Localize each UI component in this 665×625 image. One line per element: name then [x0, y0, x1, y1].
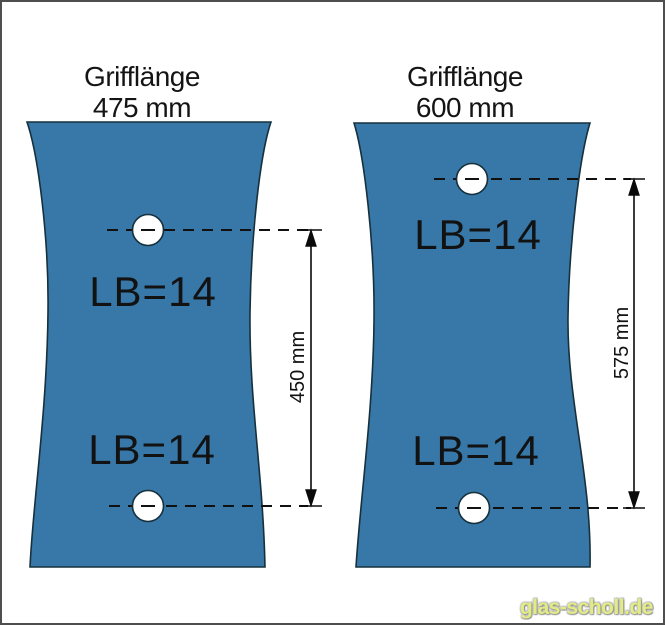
arrowhead-up-icon: [629, 180, 639, 195]
dimension-value-right: 575 mm: [612, 307, 632, 379]
panel-left-title: Grifflänge 475 mm: [84, 61, 200, 123]
dimension-value-left: 450 mm: [288, 331, 308, 403]
diagram-canvas: Grifflänge 475 mm Grifflänge 600 mm LB=1…: [0, 0, 665, 625]
hole-label-left-bottom: LB=14: [88, 429, 216, 471]
hole-label-right-top: LB=14: [414, 214, 542, 256]
arrowhead-up-icon: [306, 231, 316, 246]
arrowhead-down-icon: [629, 492, 639, 507]
hole-label-left-top: LB=14: [89, 271, 217, 313]
panel-right-title-line2: 600 mm: [407, 92, 523, 123]
arrowhead-down-icon: [306, 490, 316, 505]
panel-left-title-line1: Grifflänge: [84, 61, 200, 92]
site-watermark: glas-scholl.de: [520, 596, 653, 620]
hole-label-right-bottom: LB=14: [412, 430, 540, 472]
panel-right-title: Grifflänge 600 mm: [407, 61, 523, 123]
panel-right-title-line1: Grifflänge: [407, 61, 523, 92]
panel-left-title-line2: 475 mm: [84, 92, 200, 123]
